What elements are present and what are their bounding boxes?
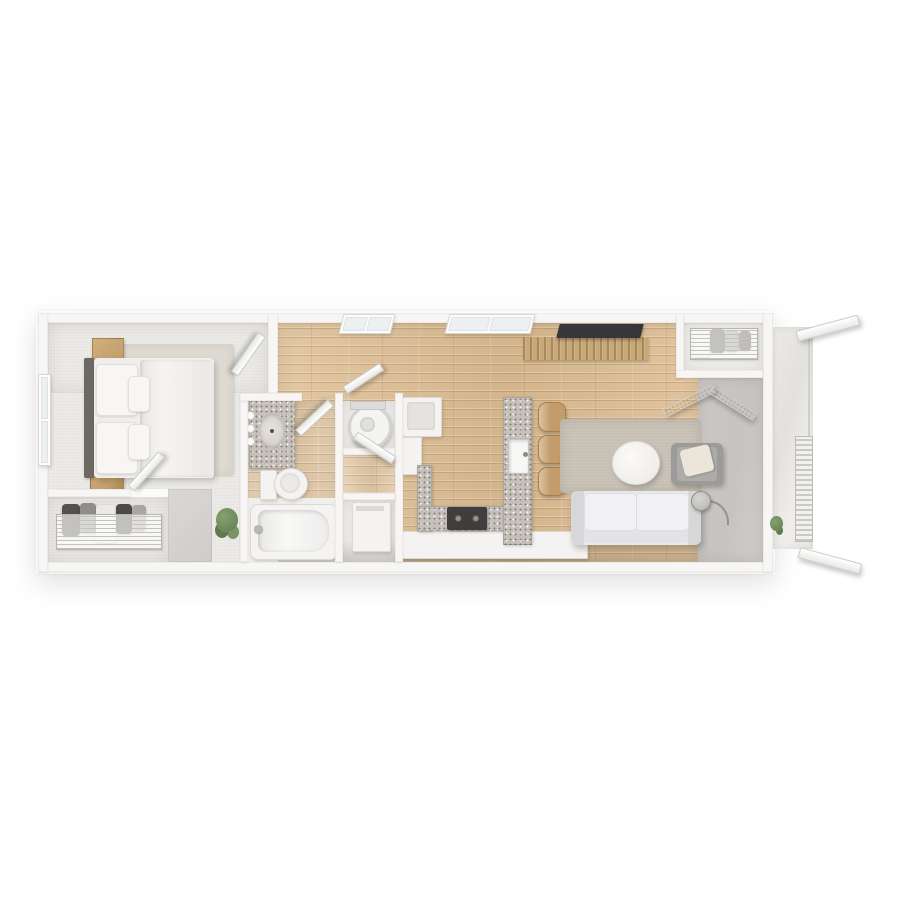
window-pane xyxy=(448,317,490,331)
tv xyxy=(556,324,643,338)
stove-cooktop xyxy=(447,507,487,530)
wall-bathroom-top xyxy=(240,393,302,401)
bed-headboard xyxy=(84,358,94,478)
wall-bathroom-left xyxy=(240,393,248,562)
bed-pillow-small-top xyxy=(128,376,150,412)
washing-machine-drum xyxy=(360,417,375,432)
toilet-seat xyxy=(280,473,300,493)
wall-laundry-right xyxy=(395,393,403,562)
window-pane xyxy=(366,317,391,331)
window-pane xyxy=(41,421,48,463)
closet-wire-shelf xyxy=(56,514,162,550)
bathtub-faucet xyxy=(254,525,263,533)
wall-outer-bottom xyxy=(38,562,773,572)
floor-plan-canvas xyxy=(0,0,900,900)
kitchen-base-cabinets xyxy=(402,531,588,559)
bathtub-basin xyxy=(258,510,329,552)
sofa-cushion xyxy=(636,493,689,531)
balcony-plant xyxy=(770,516,783,531)
wall-utility-top xyxy=(343,493,395,500)
coat-closet-wire-shelf xyxy=(690,328,758,360)
window-pane xyxy=(41,377,48,419)
media-console xyxy=(523,337,648,360)
sofa-back xyxy=(584,529,688,543)
vanity-faucet xyxy=(270,429,274,433)
wall-bathroom-right xyxy=(335,393,343,562)
coffee-table xyxy=(612,441,660,485)
balcony-railing xyxy=(795,436,813,542)
floor-lamp-shade xyxy=(691,491,711,511)
living-room-window xyxy=(445,314,536,334)
potted-plant xyxy=(216,508,238,532)
window-pane xyxy=(342,317,367,331)
water-heater-detail xyxy=(356,506,384,511)
balcony-door-top xyxy=(796,315,861,342)
sofa-cushion xyxy=(584,493,637,531)
wall-outer-right xyxy=(763,313,773,572)
bed-pillow-small-bottom xyxy=(128,424,150,460)
wall-coat-closet-bottom xyxy=(676,370,763,378)
sofa-arm-left xyxy=(571,491,584,545)
window-pane xyxy=(489,317,531,331)
wall-bedroom-kitchen xyxy=(268,313,278,393)
balcony-door-bottom xyxy=(798,547,863,574)
washing-machine-panel xyxy=(350,401,386,410)
bedroom-window xyxy=(38,374,51,466)
wall-coat-closet-left xyxy=(676,313,684,378)
wall-outer-top xyxy=(38,313,773,323)
wall-block-closet xyxy=(168,489,212,562)
island-faucet xyxy=(523,452,528,457)
refrigerator-top xyxy=(407,402,435,430)
balcony-railing-edge xyxy=(808,334,810,436)
kitchen-window xyxy=(339,314,396,334)
wall-bedroom-closet xyxy=(48,489,131,497)
